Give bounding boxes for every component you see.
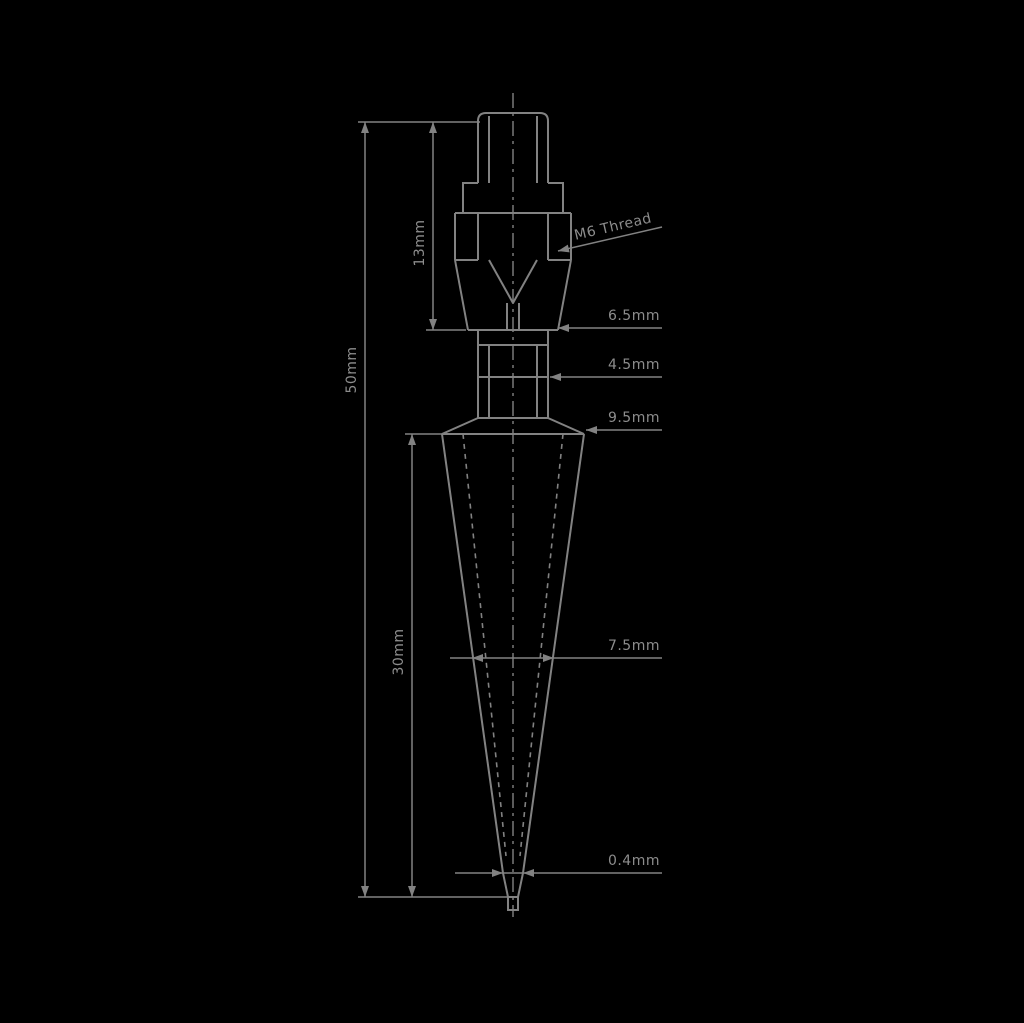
arrowhead [550,373,561,381]
part-outline [442,113,584,910]
arrowhead [557,245,570,255]
taper-right-edge [523,434,584,873]
flare-right [548,418,584,434]
arrowhead [361,886,369,897]
dimension-labels: 50mm 13mm 30mm M6 Thread 6.5mm 4.5mm 9.5… [344,210,660,869]
arrowhead [523,869,534,877]
internal-cone-left [489,260,513,303]
label-taper-length: 30mm [391,628,407,675]
arrowhead [492,869,503,877]
label-taper-mid-diameter: 7.5mm [608,638,660,654]
label-seat-diameter: 6.5mm [608,308,660,324]
arrowhead [429,319,437,330]
seat-taper-right [558,260,571,330]
internal-bore-right [520,434,563,856]
arrowhead [408,886,416,897]
internal-bore-left [463,434,506,856]
arrowhead [361,122,369,133]
label-upper-section-length: 13mm [412,219,428,266]
label-tip-orifice: 0.4mm [608,853,660,869]
technical-drawing-canvas: 50mm 13mm 30mm M6 Thread 6.5mm 4.5mm 9.5… [0,0,1024,1023]
internal-cone-right [513,260,537,303]
label-taper-top-diameter: 9.5mm [608,410,660,426]
arrowhead [586,426,597,434]
taper-left-edge [442,434,503,873]
tip-cone-right [518,873,523,897]
dimension-lines [358,122,662,897]
label-flats-width: 4.5mm [608,357,660,373]
label-overall-length: 50mm [344,346,360,393]
seat-taper-left [455,260,468,330]
flare-left [442,418,478,434]
arrowhead [408,434,416,445]
arrowhead [429,122,437,133]
tip-cone-left [503,873,508,897]
nozzle-dimension-diagram: 50mm 13mm 30mm M6 Thread 6.5mm 4.5mm 9.5… [0,0,1024,1023]
